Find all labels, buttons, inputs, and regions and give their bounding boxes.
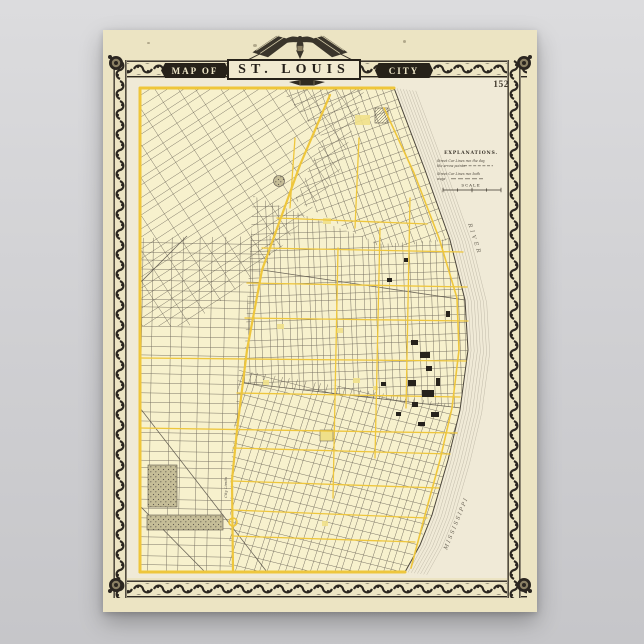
legend-title: EXPLANATIONS. [444,150,498,156]
paper-speck [403,40,406,43]
page-number: 152 [481,80,509,90]
border-corner-ornament [514,575,534,595]
title-banner: ST. LOUIS [227,59,361,80]
map-canvas: EXPLANATIONS. Street Car Lines run the d… [127,78,507,578]
scale-label: SCALE [461,183,480,188]
map-title: ST. LOUIS [238,62,350,78]
legend-line: ways [437,177,446,181]
banner-map-of-label: MAP OF [172,66,219,76]
paper-speck [147,42,150,44]
banner-city: CITY [375,63,433,78]
border-corner-ornament [106,575,126,595]
banner-city-label: CITY [389,66,420,76]
city-limits-label: City Limits [223,477,228,498]
ornamental-border-bottom [113,580,527,598]
legend-line: Street Car Lines run both [437,172,480,176]
legend-line: the arrow points [437,164,465,168]
legend-line: Street Car Lines run the day [437,159,485,163]
banner-map-of: MAP OF [161,63,229,78]
map-poster: EXPLANATIONS. Street Car Lines run the d… [103,30,537,612]
border-corner-ornament [106,53,126,73]
page-background: { "page_number": "152", "poster": { "ban… [0,0,644,644]
ornamental-border-left [113,60,127,598]
ornamental-border-right [507,60,521,598]
border-corner-ornament [514,53,534,73]
title-ribbon-ornament [289,80,325,87]
